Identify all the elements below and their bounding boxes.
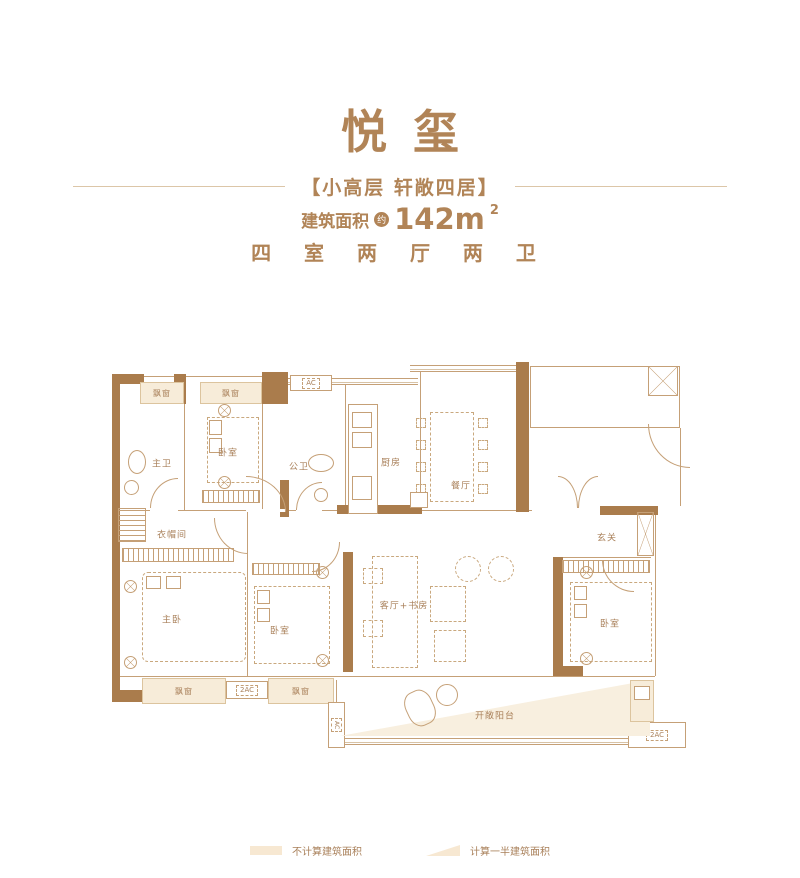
approx-circle-icon: 约 [374, 212, 389, 227]
room-label-bedroom-right: 卧室 [600, 617, 620, 630]
kitchen-sink [352, 432, 372, 448]
masterbath-door-arc [150, 478, 178, 508]
wall [516, 362, 529, 512]
bed-pillow [257, 590, 270, 604]
ac-unit: 2AC [226, 681, 268, 699]
chair-outline [455, 556, 481, 582]
bay-window: 飘窗 [200, 382, 262, 404]
washbasin [314, 488, 328, 502]
room-label-bedroom-mid: 卧室 [270, 624, 290, 637]
room-label-public-bath: 公卫 [289, 460, 309, 473]
ac-unit: AC [290, 375, 332, 391]
armchair-outline [434, 630, 466, 662]
subtitle: 【小高层 轩敞四居】 [301, 173, 499, 200]
dining-chair [416, 462, 426, 472]
window-band [410, 365, 518, 372]
wall [553, 557, 563, 675]
ceiling-symbol [316, 654, 329, 667]
room-label-foyer: 玄关 [597, 531, 617, 544]
coffee-table-outline [430, 586, 466, 622]
room-label-dining: 餐厅 [451, 479, 471, 492]
ac2-label: 2AC [236, 685, 258, 696]
subtitle-right-line [515, 186, 727, 187]
ac-label: AC [331, 718, 342, 732]
room-label-master-bedroom: 主卧 [162, 613, 182, 626]
area-superscript: 2 [490, 203, 499, 218]
bay-window: 飘窗 [140, 382, 184, 404]
bed-pillow [574, 586, 587, 600]
bay-window-label: 飘窗 [175, 686, 193, 697]
kitchen-cabinet [410, 492, 428, 508]
legend: 不计算建筑面积 计算一半建筑面积 [0, 843, 800, 858]
kitchen-stove [352, 476, 372, 500]
door-gap [558, 509, 598, 512]
dining-chair [478, 462, 488, 472]
wardrobe [562, 560, 650, 573]
ceiling-symbol [316, 566, 329, 579]
bay-window: 飘窗 [268, 678, 334, 704]
subtitle-left-line [73, 186, 285, 187]
room-config: 四 室 两 厅 两 卫 [0, 237, 800, 266]
bay-window-label: 飘窗 [153, 388, 171, 399]
dining-chair [416, 418, 426, 428]
wall-line [119, 676, 655, 677]
area-row: 建筑面积 约 142m 2 [0, 205, 800, 234]
page-title: 悦玺 [0, 96, 800, 162]
cloakroom-cabinet [118, 508, 146, 542]
floorplan-page: { "header": { "title": "悦玺", "subtitle":… [0, 0, 800, 878]
subtitle-row: 【小高层 轩敞四居】 [0, 173, 800, 200]
door-gap [150, 509, 178, 512]
legend-label: 不计算建筑面积 [292, 843, 362, 858]
balcony-window-band [336, 738, 652, 745]
balcony-cabinet-inner [634, 686, 650, 700]
legend-label: 计算一半建筑面积 [470, 843, 550, 858]
wall-line [345, 384, 346, 510]
room-label-living-study: 客厅+书房 [380, 599, 429, 612]
wardrobe [202, 490, 260, 503]
room-label-bedroom-top: 卧室 [218, 446, 238, 459]
ceiling-symbol [124, 580, 137, 593]
washbasin [124, 480, 139, 495]
bay-window: 飘窗 [142, 678, 226, 704]
legend-item-excluded: 不计算建筑面积 [250, 843, 362, 858]
wall [553, 666, 583, 676]
bed-pillow [166, 576, 181, 589]
entry-door-arc-left [558, 476, 578, 508]
entry-door-arc-right [578, 476, 598, 508]
dining-chair [478, 440, 488, 450]
room-label-master-bath: 主卫 [152, 457, 172, 470]
bay-window-label: 飘窗 [222, 388, 240, 399]
toilet [128, 450, 146, 474]
balcony-chair-sketch [436, 684, 458, 706]
area-prefix: 建筑面积 [301, 207, 369, 232]
kitchen-sink [352, 412, 372, 428]
cloakroom-wardrobe [122, 548, 234, 562]
room-label-cloakroom: 衣帽间 [157, 528, 187, 541]
chair-outline [488, 556, 514, 582]
corridor-door-arc [648, 424, 690, 468]
bed-pillow [209, 420, 222, 435]
legend-triangle-swatch [426, 845, 460, 856]
wall [262, 372, 288, 404]
floor-plan: 飘窗 飘窗 AC 飘窗 2AC 飘窗 AC 2AC [110, 360, 704, 760]
legend-item-half: 计算一半建筑面积 [426, 843, 550, 858]
bed-pillow [146, 576, 161, 589]
wardrobe [252, 563, 320, 575]
toilet [308, 454, 334, 472]
dining-chair [478, 418, 488, 428]
ceiling-symbol [124, 656, 137, 669]
desk-chair [363, 568, 383, 584]
room-label-kitchen: 厨房 [381, 456, 401, 469]
bay-window-label: 飘窗 [292, 686, 310, 697]
shaft-hatch [648, 366, 678, 396]
wall-line [655, 510, 656, 676]
bed-pillow [574, 604, 587, 618]
ceiling-symbol [218, 476, 231, 489]
wall [343, 552, 353, 672]
bed-pillow [257, 608, 270, 622]
foyer-shaft-hatch [637, 512, 654, 556]
dining-chair [416, 440, 426, 450]
area-value: 142m [394, 205, 485, 234]
ac-unit-vertical: AC [328, 702, 345, 748]
wall-line [563, 557, 651, 558]
ceiling-symbol [218, 404, 231, 417]
ac-label: AC [302, 378, 320, 389]
dining-chair [478, 484, 488, 494]
room-label-balcony: 开敞阳台 [475, 709, 515, 722]
ceiling-symbol [580, 566, 593, 579]
desk-chair [363, 620, 383, 637]
legend-rect-swatch [250, 846, 282, 855]
ceiling-symbol [580, 652, 593, 665]
